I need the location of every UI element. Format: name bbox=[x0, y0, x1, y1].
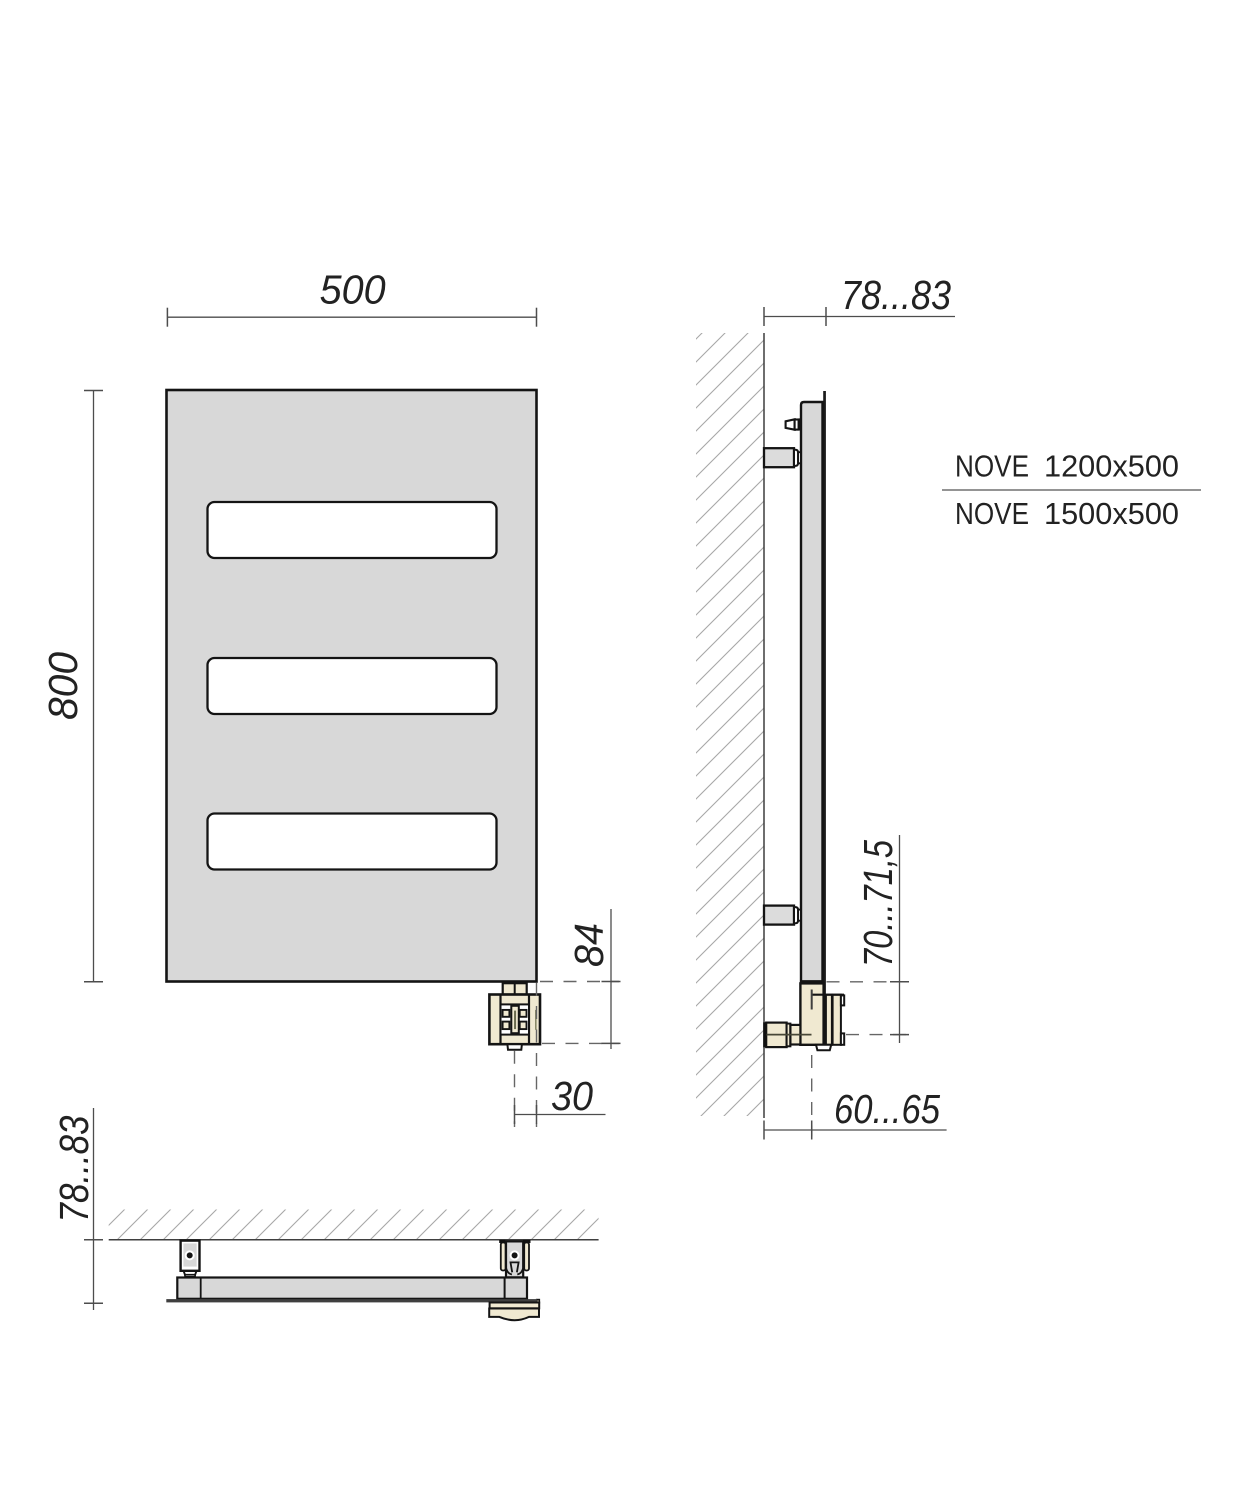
svg-text:70...71,5: 70...71,5 bbox=[855, 840, 901, 967]
svg-text:500: 500 bbox=[320, 267, 386, 313]
svg-text:60...65: 60...65 bbox=[834, 1086, 940, 1132]
svg-text:NOVE: NOVE bbox=[955, 448, 1029, 483]
svg-text:800: 800 bbox=[40, 652, 86, 720]
svg-text:1200x500: 1200x500 bbox=[1044, 448, 1179, 483]
svg-text:NOVE: NOVE bbox=[955, 496, 1029, 531]
svg-text:78...83: 78...83 bbox=[51, 1115, 97, 1222]
svg-text:1500x500: 1500x500 bbox=[1044, 496, 1179, 531]
svg-text:78...83: 78...83 bbox=[841, 272, 951, 318]
svg-text:84: 84 bbox=[566, 923, 612, 967]
svg-text:30: 30 bbox=[551, 1073, 593, 1119]
